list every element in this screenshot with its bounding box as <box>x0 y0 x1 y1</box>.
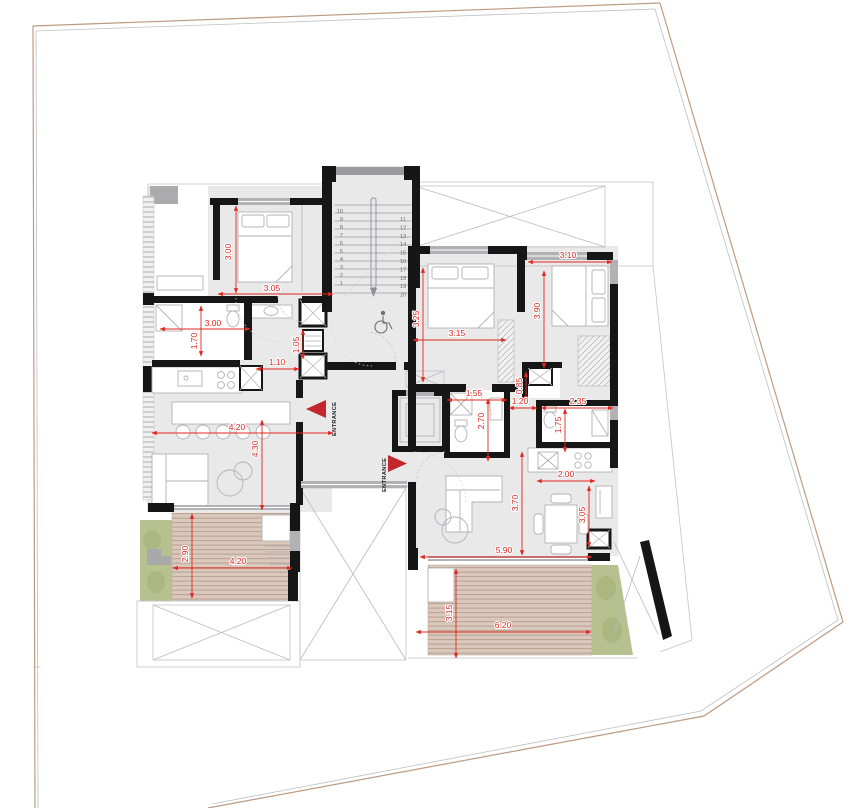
dimension-label: 1.10 <box>269 357 286 367</box>
void-top-right <box>415 186 605 247</box>
dimension-label: 4.20 <box>229 422 246 432</box>
bed-a <box>238 212 292 282</box>
wc-niche-b <box>528 368 552 385</box>
stair-number: 14 <box>400 242 406 248</box>
dimension-label: 4.30 <box>250 440 260 457</box>
stair-number: 2 <box>340 273 343 279</box>
deck-box-left <box>262 515 290 541</box>
dimension-label: 2.00 <box>558 469 575 479</box>
entrance-label-b: ENTRANCE <box>382 458 388 492</box>
dimension-label: 3.00 <box>205 318 222 328</box>
stair-number: 9 <box>340 217 343 223</box>
dimension-label: 1.20 <box>512 396 529 406</box>
void-bottom-center <box>300 488 406 660</box>
dimension-label: 1.05 <box>291 336 301 353</box>
floor-plan-page: ENTRANCE ENTRANCE 1098765432111121314151… <box>0 0 853 808</box>
dimension-label: 2.70 <box>476 412 486 429</box>
deck-box-right <box>428 568 454 602</box>
bed-b1 <box>428 264 494 328</box>
stair-number: 15 <box>400 251 406 257</box>
dimension-label: 1.75 <box>553 416 563 433</box>
dimension-label: 3.70 <box>510 494 520 511</box>
dimension-label: 3.90 <box>532 302 542 319</box>
kitchen-a <box>152 366 262 393</box>
stair-number: 1 <box>340 281 343 287</box>
stair-number: 11 <box>400 217 406 223</box>
dimension-label: 6.20 <box>495 620 512 630</box>
stair-number: 3 <box>340 265 343 271</box>
dimension-label: 1.70 <box>189 332 199 349</box>
floor-plan: ENTRANCE ENTRANCE 1098765432111121314151… <box>0 0 853 808</box>
shaft-b <box>588 530 610 548</box>
dimension-label: 3.15 <box>449 328 466 338</box>
wardrobe-b2 <box>578 336 610 386</box>
dimension-label: 5.90 <box>496 545 513 555</box>
dimension-label: 3.00 <box>223 243 233 260</box>
dimension-label: 3.05 <box>577 506 587 523</box>
bed-b2 <box>552 266 608 326</box>
void-bottom-left <box>137 601 300 667</box>
desk-a <box>157 276 203 290</box>
stair-number: 6 <box>340 241 343 247</box>
stair-number: 8 <box>340 225 343 231</box>
stair-number: 19 <box>400 284 406 290</box>
stair-number: 17 <box>400 267 406 273</box>
stair-number: 18 <box>400 276 406 282</box>
dimension-label: 1.55 <box>466 388 483 398</box>
dimension-label: 4.20 <box>230 556 247 566</box>
dimension-label: 3.25 <box>411 310 421 327</box>
stair-number: 7 <box>340 233 343 239</box>
dimension-label: 3.10 <box>560 250 577 260</box>
entrance-label-a: ENTRANCE <box>332 402 338 436</box>
stair-number: 4 <box>340 257 343 263</box>
wardrobe-b1 <box>498 320 514 382</box>
stair-number: 12 <box>400 225 406 231</box>
dimension-label: 0.85 <box>514 377 524 394</box>
dimension-label: 3.05 <box>264 283 281 293</box>
dimension-label: 2.90 <box>180 545 190 562</box>
stair-number: 20 <box>400 293 406 299</box>
stair-number: 16 <box>400 259 406 265</box>
dimension-label: 3.15 <box>444 604 454 621</box>
stair-number: 5 <box>340 249 343 255</box>
stair-number: 13 <box>400 234 406 240</box>
stair-number: 10 <box>337 209 343 215</box>
dimension-label: 2.35 <box>570 396 587 406</box>
fridge-b <box>596 486 612 518</box>
